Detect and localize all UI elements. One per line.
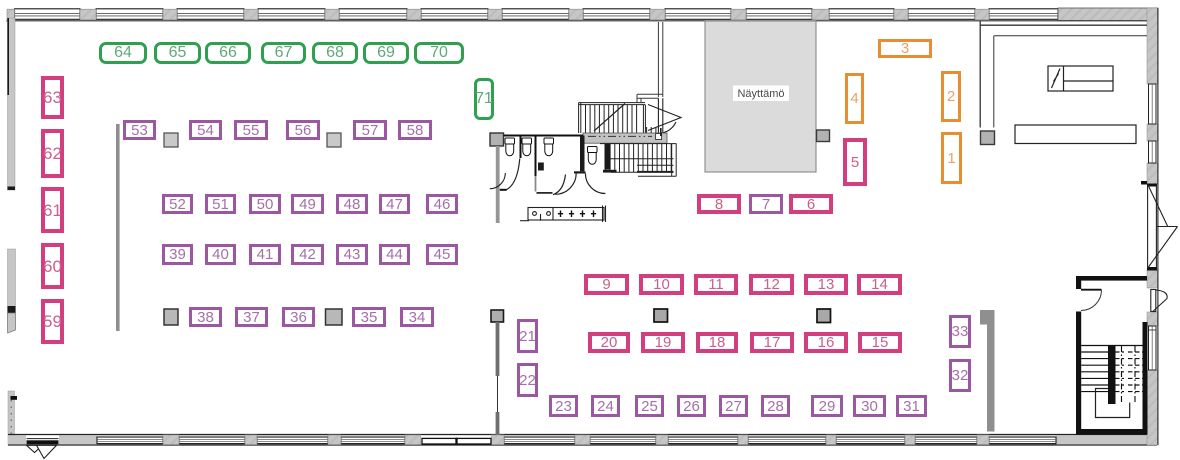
svg-text:Näyttämö: Näyttämö <box>737 88 784 100</box>
